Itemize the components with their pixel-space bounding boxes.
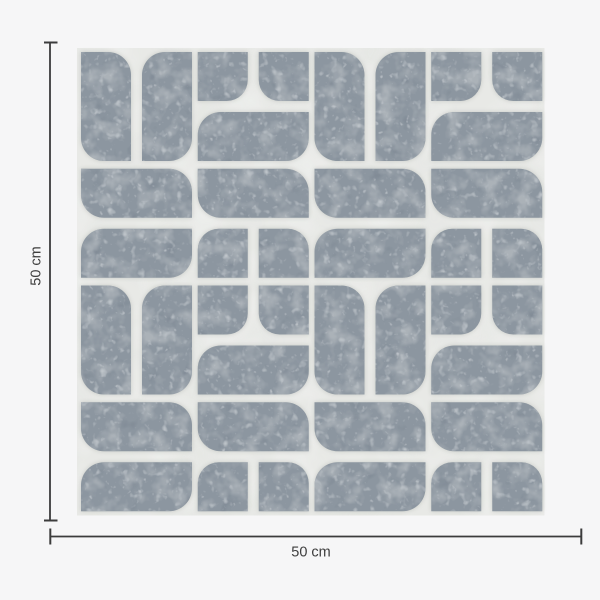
svg-text:50 cm: 50 cm <box>291 545 331 561</box>
svg-text:50 cm: 50 cm <box>29 246 45 286</box>
